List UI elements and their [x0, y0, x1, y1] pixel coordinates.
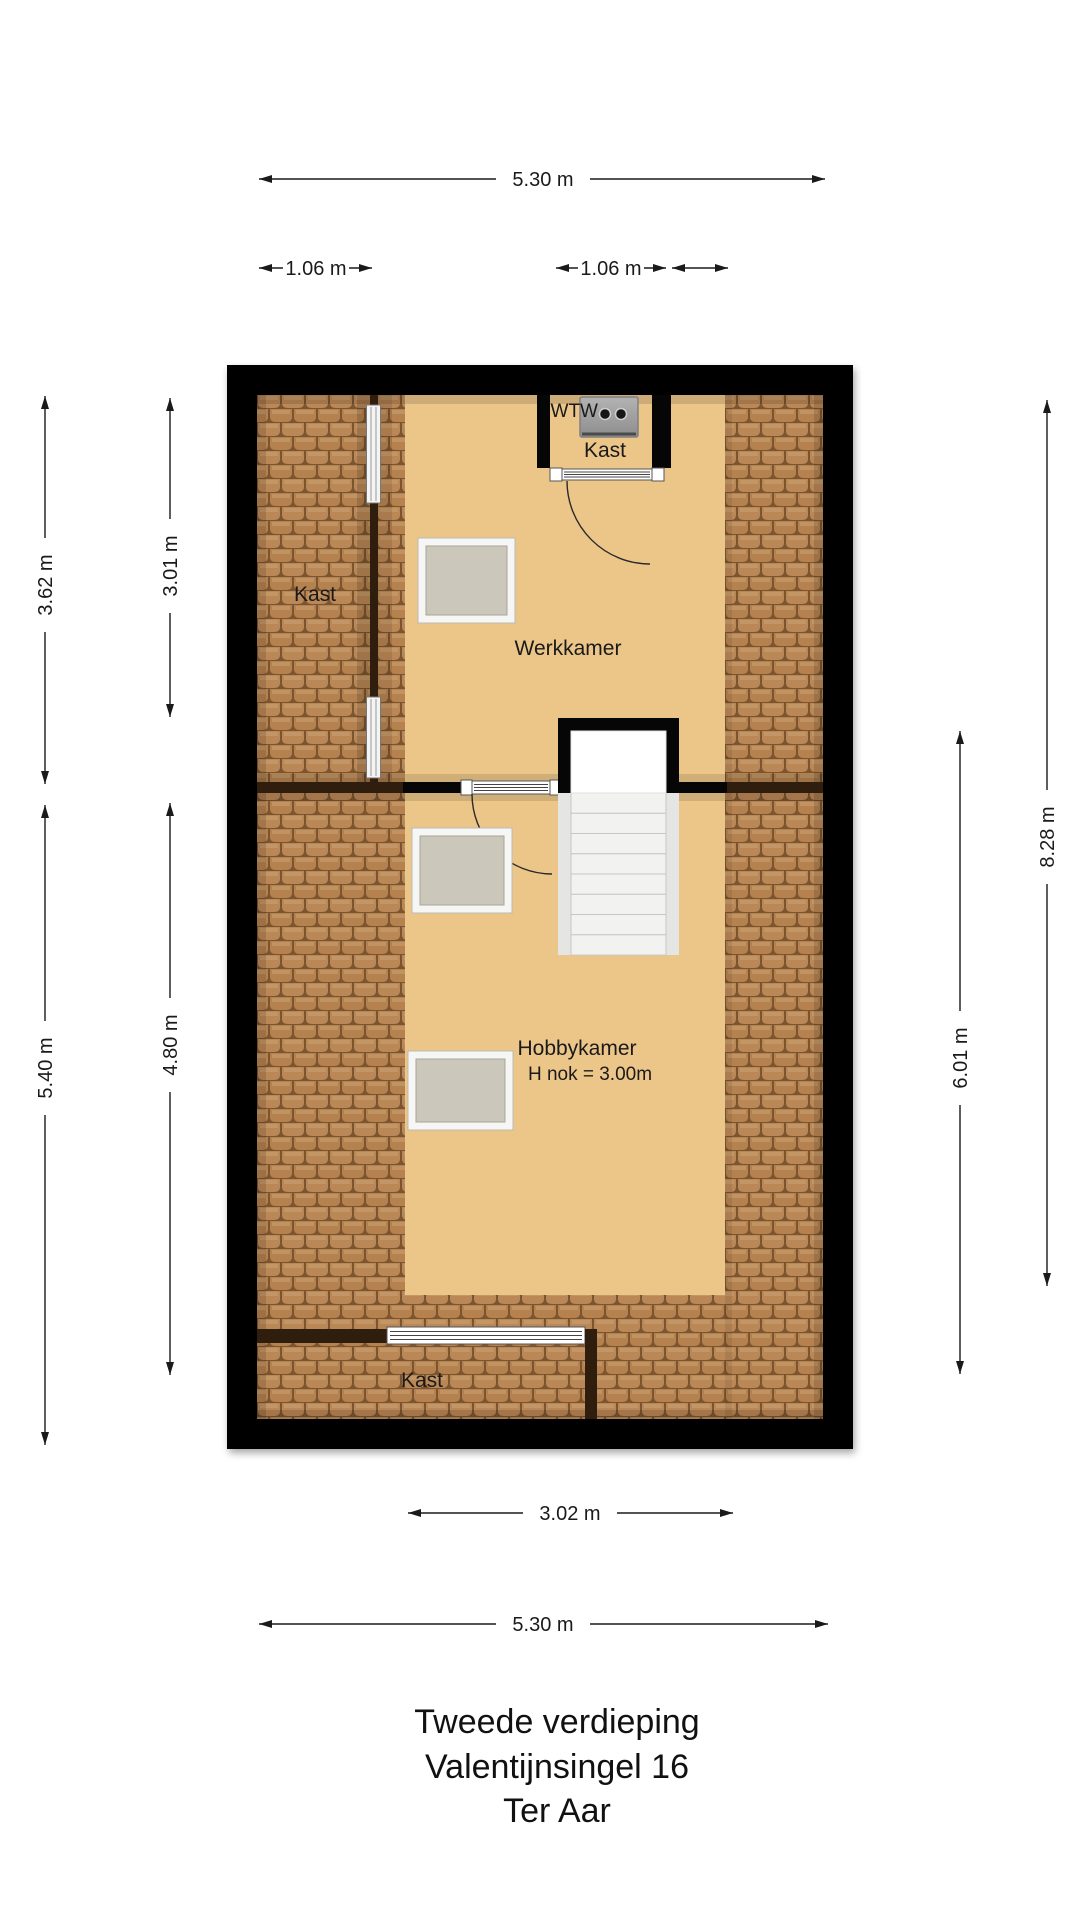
dim-top-width: 5.30 m — [259, 164, 825, 194]
dim-top-left-closet: 1.06 m — [259, 254, 372, 282]
svg-text:3.02 m: 3.02 m — [539, 1503, 600, 1525]
dim-right-full: 8.28 m — [1032, 400, 1062, 1286]
dim-bottom-width: 5.30 m — [259, 1610, 828, 1640]
stairwell-wall-top — [558, 718, 679, 731]
room-label-hnok: H nok = 3.00m — [528, 1064, 652, 1085]
dim-left-upper-outer: 3.62 m — [30, 396, 60, 784]
title-address: Valentijnsingel 16 — [425, 1748, 689, 1786]
svg-text:5.40 m: 5.40 m — [35, 1037, 57, 1098]
roof-tiles-bottom — [405, 1295, 725, 1419]
stair-tread — [571, 854, 666, 874]
stairwell-wall-left — [558, 718, 571, 793]
stairwell-wall-right — [666, 718, 679, 793]
dim-left-upper-inner: 3.01 m — [155, 398, 185, 717]
stair-tread — [571, 894, 666, 914]
stairwell-void — [571, 731, 666, 793]
room-label-kast-bottom: Kast — [401, 1369, 443, 1392]
room-label-wtw: WTW — [551, 401, 599, 422]
stair-tread — [571, 874, 666, 894]
stair-stringer — [666, 793, 679, 955]
dim-left-lower-inner: 4.80 m — [155, 803, 185, 1375]
svg-text:1.06 m: 1.06 m — [580, 258, 641, 280]
title-floor: Tweede verdieping — [414, 1703, 699, 1741]
room-label-werkkamer: Werkkamer — [515, 637, 622, 660]
floor-plan-canvas: Kast WTW Kast Werkkamer Hobbykamer H nok… — [0, 0, 1080, 1920]
sliding-panel-top — [367, 405, 381, 503]
roof-window — [408, 1051, 513, 1130]
title-block: Tweede verdieping Valentijnsingel 16 Ter… — [414, 1703, 699, 1830]
stair-stringer — [558, 793, 571, 955]
dim-bottom-inner: 3.02 m — [408, 1499, 733, 1529]
stair-tread — [571, 793, 666, 813]
stair-tread — [571, 915, 666, 935]
roof-window — [412, 828, 512, 913]
door-frame — [461, 780, 472, 795]
wtw-knob — [616, 409, 627, 420]
svg-text:3.01 m: 3.01 m — [160, 535, 182, 596]
svg-text:3.62 m: 3.62 m — [35, 554, 57, 615]
roof-tiles-right — [725, 395, 823, 1419]
wtw-knob — [600, 409, 611, 420]
svg-text:6.01 m: 6.01 m — [950, 1027, 972, 1088]
stair-tread — [571, 813, 666, 833]
svg-text:5.30 m: 5.30 m — [512, 169, 573, 191]
floor-plan: Kast WTW Kast Werkkamer Hobbykamer H nok… — [227, 365, 853, 1449]
room-label-hobbykamer: Hobbykamer — [517, 1037, 636, 1060]
dim-right-lower: 6.01 m — [945, 731, 975, 1374]
stair-tread — [571, 834, 666, 854]
dim-top-mid-closet: 1.06 m — [556, 254, 666, 282]
title-city: Ter Aar — [503, 1792, 611, 1830]
stair-tread — [571, 935, 666, 955]
roof-window — [418, 538, 515, 623]
svg-text:5.30 m: 5.30 m — [512, 1614, 573, 1636]
dim-left-lower-outer: 5.40 m — [30, 805, 60, 1445]
room-label-kast-left: Kast — [294, 583, 336, 606]
svg-text:1.06 m: 1.06 m — [285, 258, 346, 280]
room-label-kast-top: Kast — [584, 439, 626, 462]
svg-text:8.28 m: 8.28 m — [1037, 806, 1059, 867]
stairwell — [558, 718, 679, 955]
sliding-panel-bottom — [367, 697, 381, 778]
svg-text:4.80 m: 4.80 m — [160, 1014, 182, 1075]
